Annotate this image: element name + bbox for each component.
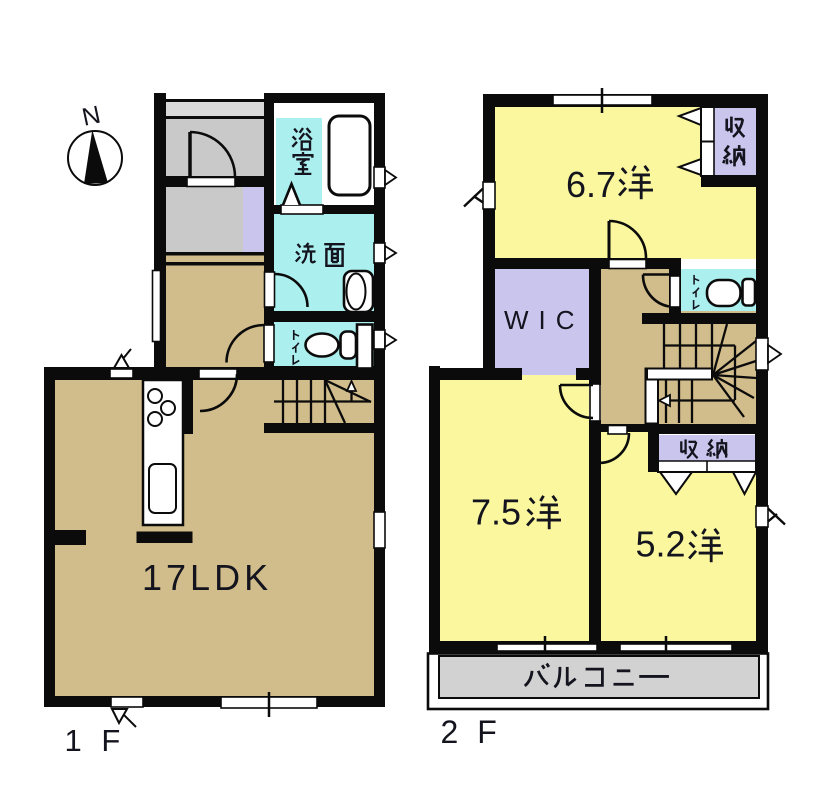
svg-text:5.2: 5.2	[636, 524, 686, 565]
svg-text:6.7: 6.7	[566, 164, 616, 205]
svg-text:2 F: 2 F	[441, 714, 502, 750]
svg-text:WIC: WIC	[504, 305, 585, 335]
svg-text:17LDK: 17LDK	[142, 557, 272, 598]
svg-text:1 F: 1 F	[65, 723, 126, 758]
svg-text:7.5: 7.5	[471, 492, 521, 533]
